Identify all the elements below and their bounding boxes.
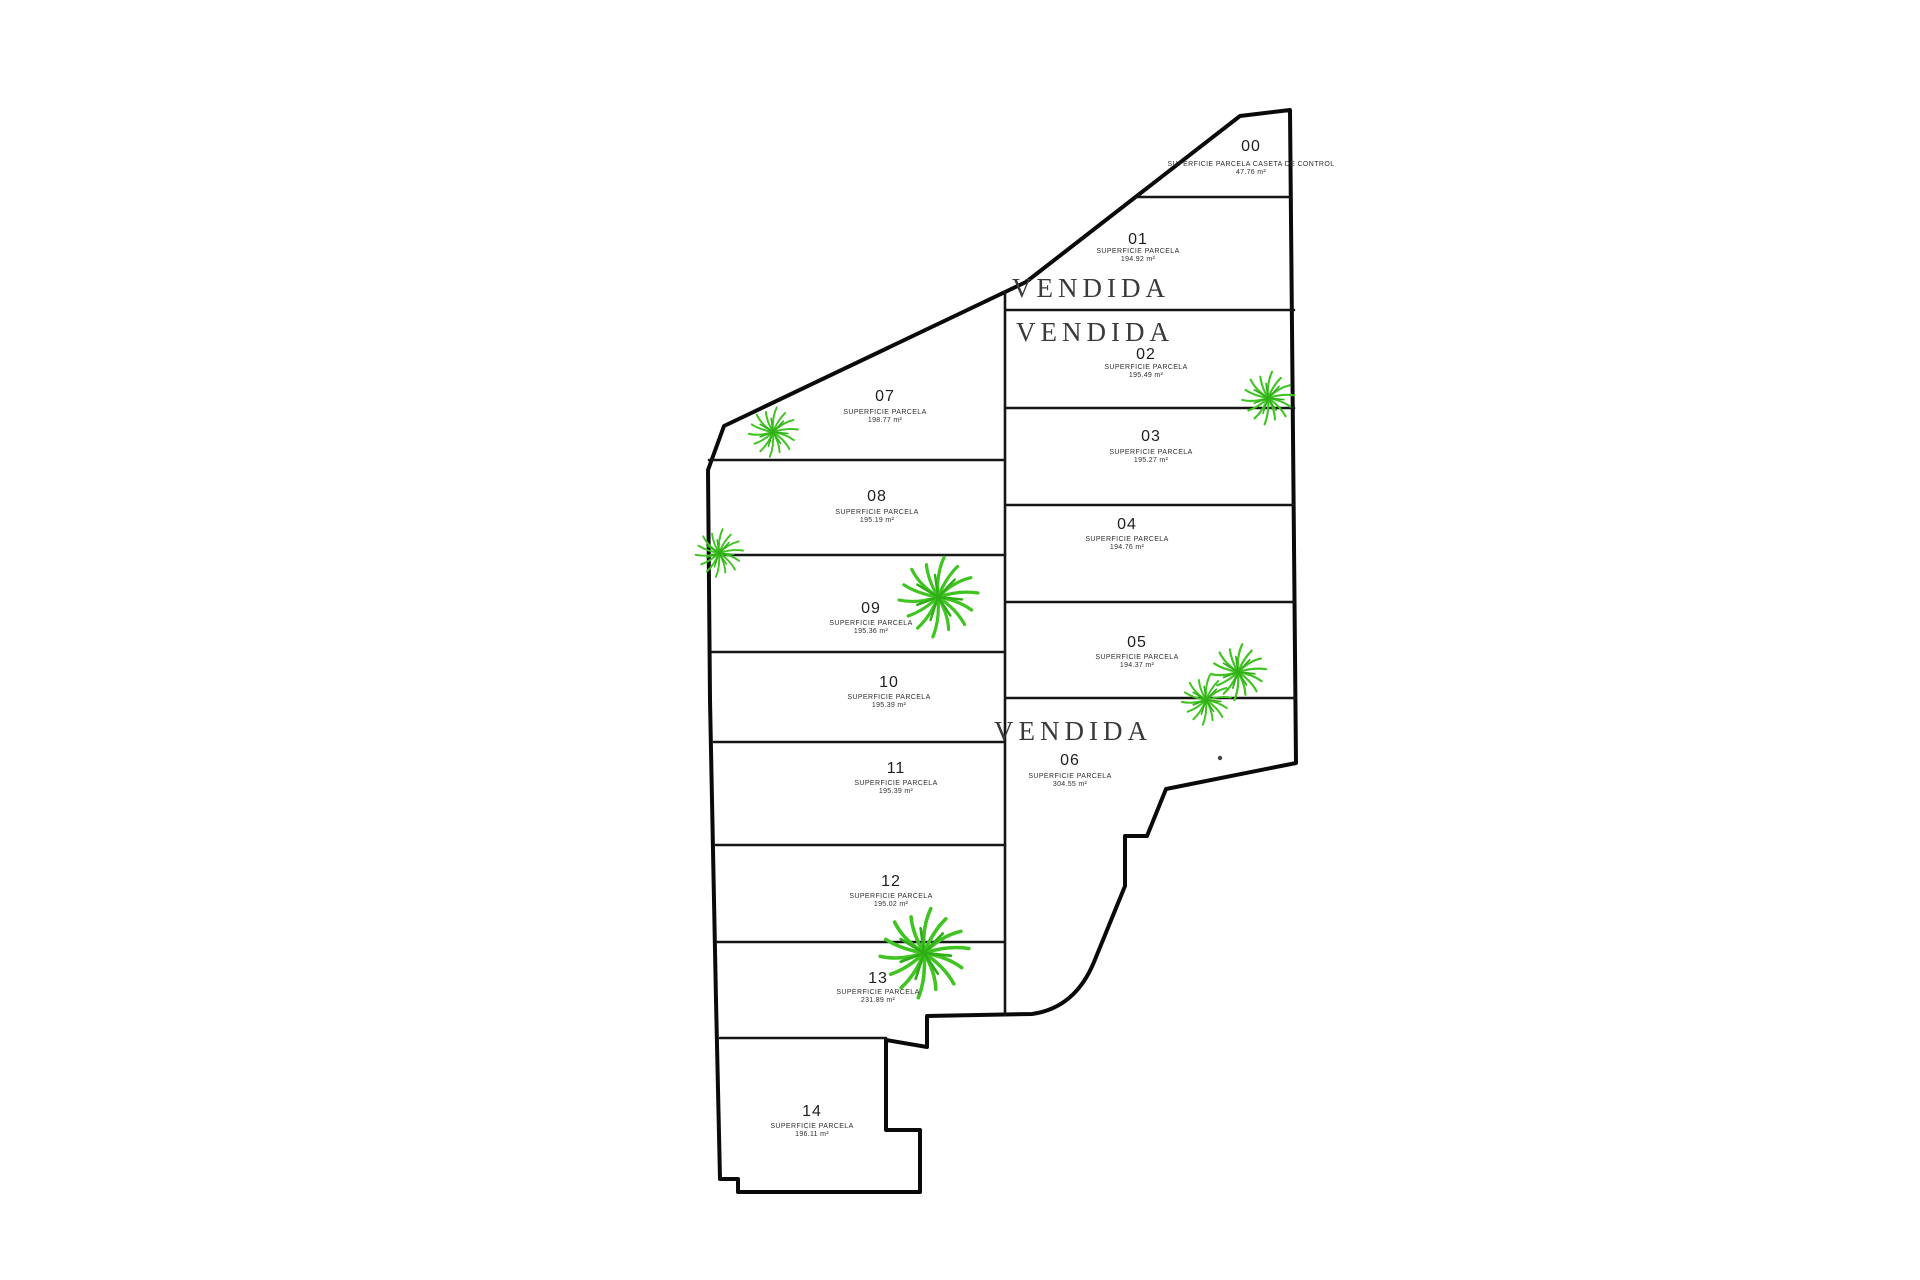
parcel-05-label: SUPERFICIE PARCELA <box>1095 654 1178 661</box>
parcel-14-label: SUPERFICIE PARCELA <box>770 1123 853 1130</box>
parcel-00-number: 00 <box>1241 138 1261 156</box>
parcel-boundaries <box>709 197 1296 1038</box>
parcel-09-area: 195.36 m² <box>854 628 888 635</box>
parcel-01-number: 01 <box>1128 231 1148 249</box>
parcel-14-area: 196.11 m² <box>795 1131 829 1138</box>
parcel-12-label: SUPERFICIE PARCELA <box>849 893 932 900</box>
parcel-03-number: 03 <box>1141 428 1161 446</box>
vendida-label-02: VENDIDA <box>1016 317 1174 348</box>
parcel-02-area: 195.49 m² <box>1129 372 1163 379</box>
parcel-04-area: 194.76 m² <box>1110 544 1144 551</box>
parcel-07-area: 198.77 m² <box>868 417 902 424</box>
parcel-00-label: SUPERFICIE PARCELA CASETA DE CONTROL <box>1167 161 1334 168</box>
plant-icon <box>1242 372 1294 425</box>
parcel-06-area: 304.55 m² <box>1053 781 1087 788</box>
parcel-10-number: 10 <box>879 674 899 692</box>
parcel-06-label: SUPERFICIE PARCELA <box>1028 773 1111 780</box>
parcel-03-area: 195.27 m² <box>1134 457 1168 464</box>
parcel-10-label: SUPERFICIE PARCELA <box>847 694 930 701</box>
parcel-13-label: SUPERFICIE PARCELA <box>836 989 919 996</box>
parcel-09-number: 09 <box>861 600 881 618</box>
parcel-03-label: SUPERFICIE PARCELA <box>1109 449 1192 456</box>
parcel-08-number: 08 <box>867 488 887 506</box>
parcel-10-area: 195.39 m² <box>872 702 906 709</box>
parcel-12-number: 12 <box>881 873 901 891</box>
parcel-07-number: 07 <box>875 388 895 406</box>
parcel-05-area: 194.37 m² <box>1120 662 1154 669</box>
parcel-11-number: 11 <box>887 760 906 778</box>
parcel-04-number: 04 <box>1117 516 1137 534</box>
parcel-07-label: SUPERFICIE PARCELA <box>843 409 926 416</box>
parcel-04-label: SUPERFICIE PARCELA <box>1085 536 1168 543</box>
plant-icon <box>880 908 968 998</box>
plant-icon <box>696 529 743 577</box>
parcel-13-number: 13 <box>868 970 888 988</box>
parcel-02-number: 02 <box>1136 346 1156 364</box>
parcel-08-label: SUPERFICIE PARCELA <box>835 509 918 516</box>
vendida-label-06: VENDIDA <box>994 716 1152 747</box>
parcel-09-label: SUPERFICIE PARCELA <box>829 620 912 627</box>
parcel-00-area: 47.76 m² <box>1236 169 1266 176</box>
parcel-12-area: 195.02 m² <box>874 901 908 908</box>
parcel-05-number: 05 <box>1127 634 1147 652</box>
parcel-08-area: 195.19 m² <box>860 517 894 524</box>
plant-icon <box>749 407 798 457</box>
parcel-13-area: 231.89 m² <box>861 997 895 1004</box>
vendida-label-01: VENDIDA <box>1012 273 1170 304</box>
dot-artifact <box>1218 756 1222 760</box>
parcel-01-area: 194.92 m² <box>1121 256 1155 263</box>
parcel-02-label: SUPERFICIE PARCELA <box>1104 364 1187 371</box>
parcel-01-label: SUPERFICIE PARCELA <box>1096 248 1179 255</box>
parcel-06-number: 06 <box>1060 752 1080 770</box>
site-plan: 00 SUPERFICIE PARCELA CASETA DE CONTROL … <box>0 0 1920 1280</box>
parcel-14-number: 14 <box>802 1103 822 1121</box>
parcel-11-area: 195.39 m² <box>879 788 913 795</box>
site-plan-drawing <box>0 0 1920 1280</box>
parcel-11-label: SUPERFICIE PARCELA <box>854 780 937 787</box>
